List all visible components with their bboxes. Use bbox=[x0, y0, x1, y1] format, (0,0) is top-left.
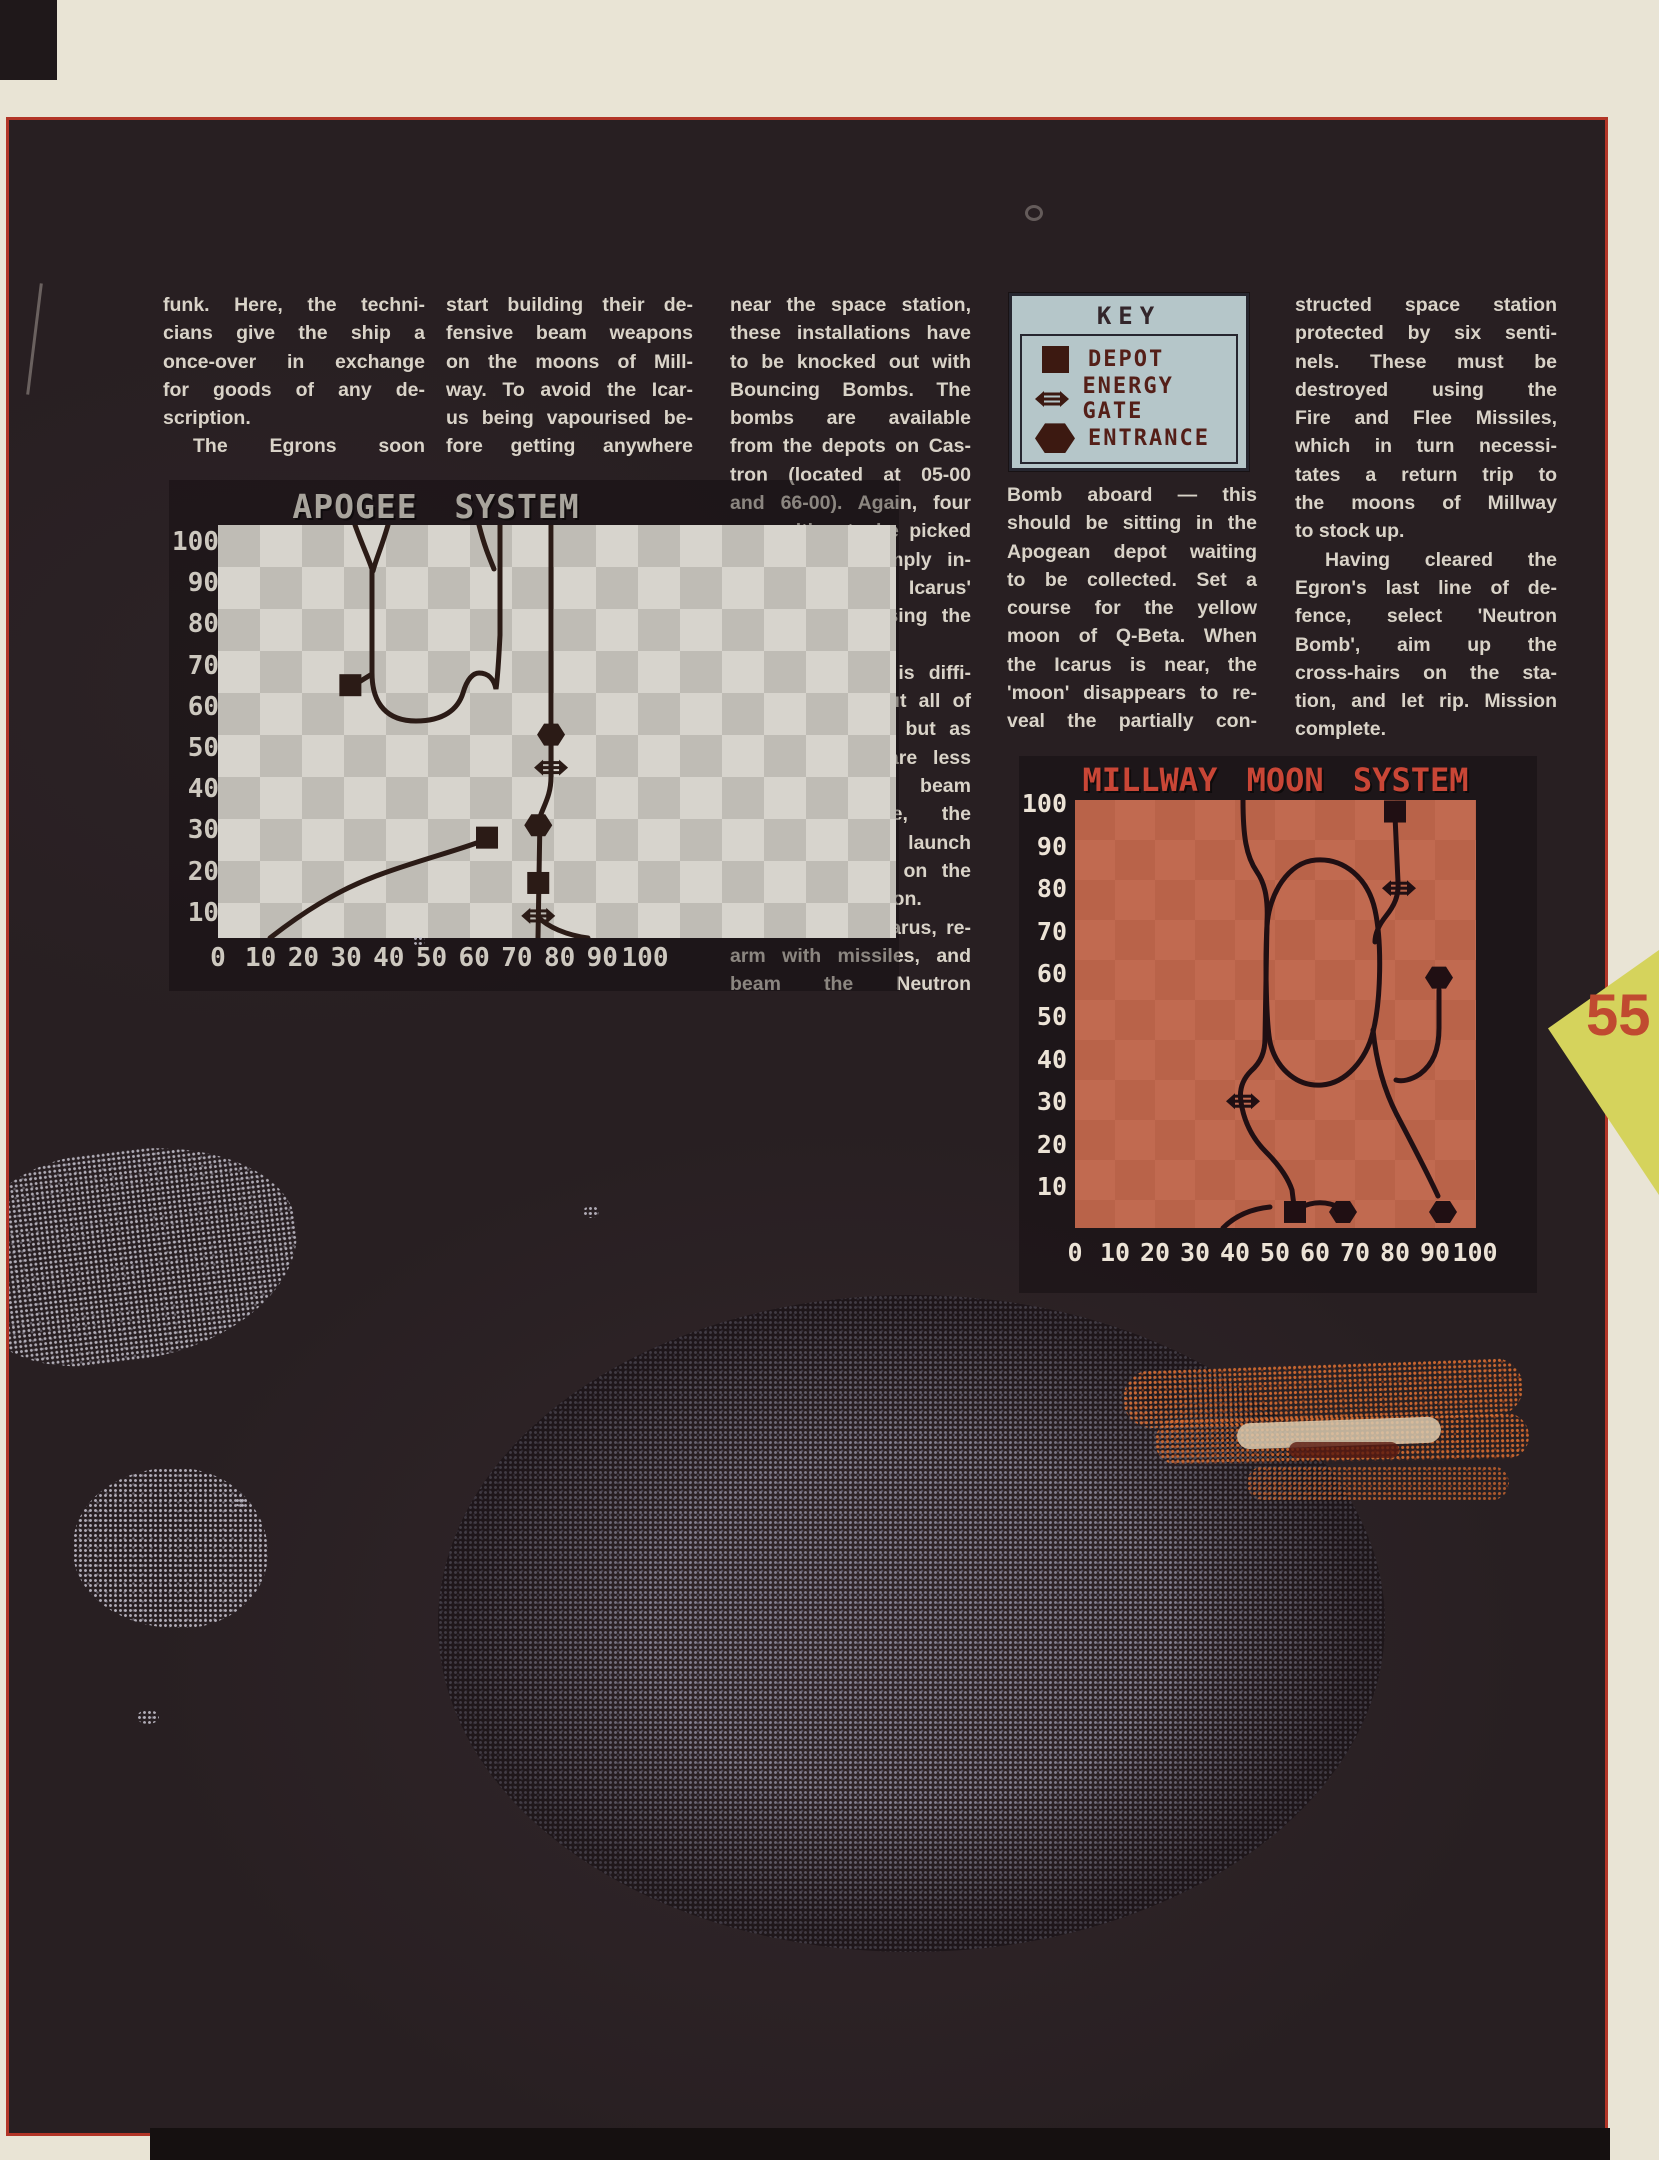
text-line: moon of Q-Beta. When bbox=[1007, 622, 1257, 650]
key-legend-box: KEY DEPOTENERGY GATEENTRANCE bbox=[1009, 293, 1249, 471]
text-line: fence, select 'Neutron bbox=[1295, 602, 1557, 630]
x-axis-tick-label: 60 bbox=[450, 943, 498, 973]
x-axis-tick-label: 20 bbox=[279, 943, 327, 973]
energy-gate-icon bbox=[1234, 1095, 1252, 1098]
text-line: cians give the ship a bbox=[163, 319, 425, 347]
y-axis-tick-label: 90 bbox=[1037, 832, 1067, 861]
y-axis-tick-label: 30 bbox=[1037, 1087, 1067, 1116]
orbit-path bbox=[1396, 990, 1439, 1081]
text-line: destroyed using the bbox=[1295, 376, 1557, 404]
text-line: tion, and let rip. Mission bbox=[1295, 687, 1557, 715]
x-axis-tick-label: 100 bbox=[621, 943, 669, 973]
text-line: the Icarus is near, the bbox=[1007, 651, 1257, 679]
scan-corner-block bbox=[0, 0, 57, 80]
entrance-icon bbox=[1035, 423, 1075, 453]
speck-3 bbox=[137, 1710, 159, 1724]
scan-scratch bbox=[26, 283, 43, 395]
apogee-map-title: APOGEE SYSTEM bbox=[218, 487, 654, 526]
x-axis-tick-label: 30 bbox=[322, 943, 370, 973]
depot-icon bbox=[339, 674, 361, 696]
text-line: the moons of Millway bbox=[1295, 489, 1557, 517]
key-item-label: DEPOT bbox=[1088, 347, 1164, 372]
energy-gate-icon bbox=[542, 771, 560, 774]
energy-gate-icon bbox=[1390, 892, 1408, 895]
text-line: near the space station, bbox=[730, 291, 971, 319]
depot-icon bbox=[1284, 1201, 1306, 1223]
y-axis-tick-label: 70 bbox=[1037, 917, 1067, 946]
x-axis-tick-label: 10 bbox=[237, 943, 285, 973]
planet-left-large bbox=[6, 1130, 311, 1379]
speck-2 bbox=[583, 1206, 599, 1218]
text-line: tates a return trip to bbox=[1295, 461, 1557, 489]
text-line: complete. bbox=[1295, 715, 1557, 743]
orbit-path bbox=[1373, 1030, 1438, 1196]
scan-fleck bbox=[1025, 205, 1043, 221]
text-line: way. To avoid the Icar- bbox=[446, 376, 693, 404]
depot-icon bbox=[1022, 346, 1088, 373]
apogee-map bbox=[218, 525, 896, 938]
y-axis-tick-label: 80 bbox=[1037, 874, 1067, 903]
text-line: Bomb aboard — this bbox=[1007, 481, 1257, 509]
text-line: The Egrons soon bbox=[163, 432, 425, 460]
planet-left-small bbox=[73, 1468, 268, 1628]
text-line: 'moon' disappears to re- bbox=[1007, 679, 1257, 707]
article-column-5: structed space stationprotected by six s… bbox=[1295, 291, 1557, 744]
millway-y-axis: 100908070605040302010 bbox=[1019, 800, 1071, 1240]
y-axis-tick-label: 50 bbox=[188, 733, 219, 763]
apogee-map-panel: APOGEE SYSTEM 100908070605040302010 0102… bbox=[169, 480, 899, 991]
millway-orbit-canvas bbox=[1075, 800, 1476, 1228]
article-column-1: funk. Here, the techni-cians give the sh… bbox=[163, 291, 425, 461]
text-line: to be knocked out with bbox=[730, 348, 971, 376]
millway-map bbox=[1075, 800, 1476, 1228]
orbit-path bbox=[479, 525, 494, 569]
energy-gate-icon bbox=[529, 909, 547, 912]
x-axis-tick-label: 70 bbox=[493, 943, 541, 973]
entrance-icon bbox=[537, 724, 565, 746]
text-line: which in turn necessi- bbox=[1295, 432, 1557, 460]
text-line: to stock up. bbox=[1295, 517, 1557, 545]
energy-gate-icon bbox=[1390, 887, 1408, 890]
energy-gate-icon bbox=[1043, 397, 1061, 400]
text-line: Fire and Flee Missiles, bbox=[1295, 404, 1557, 432]
text-line: structed space station bbox=[1295, 291, 1557, 319]
y-axis-tick-label: 20 bbox=[1037, 1130, 1067, 1159]
apogee-x-axis: 0102030405060708090100 bbox=[218, 943, 918, 973]
x-axis-tick-label: 50 bbox=[408, 943, 456, 973]
text-line: start building their de- bbox=[446, 291, 693, 319]
text-line: should be sitting in the bbox=[1007, 509, 1257, 537]
text-line: Having cleared the bbox=[1295, 546, 1557, 574]
text-line: protected by six senti- bbox=[1295, 319, 1557, 347]
y-axis-tick-label: 50 bbox=[1037, 1002, 1067, 1031]
nebula-streak-3 bbox=[1247, 1466, 1509, 1500]
energy-gate-icon bbox=[1043, 402, 1061, 405]
y-axis-tick-label: 70 bbox=[188, 651, 219, 681]
energy-gate-icon bbox=[529, 914, 547, 917]
entrance-icon bbox=[1022, 423, 1088, 453]
text-line: nels. These must be bbox=[1295, 348, 1557, 376]
y-axis-tick-label: 20 bbox=[188, 857, 219, 887]
orbit-path bbox=[373, 525, 388, 571]
scan-bottom-bar bbox=[150, 2128, 1610, 2160]
entrance-icon bbox=[1429, 1201, 1457, 1223]
millway-map-panel: MILLWAY MOON SYSTEM 10090807060504030201… bbox=[1019, 756, 1537, 1293]
article-column-4: Bomb aboard — thisshould be sitting in t… bbox=[1007, 481, 1257, 736]
energy-gate-icon bbox=[1234, 1105, 1252, 1108]
y-axis-tick-label: 60 bbox=[1037, 959, 1067, 988]
energy-gate-icon bbox=[1390, 882, 1408, 885]
key-item-label: ENERGY GATE bbox=[1082, 374, 1236, 424]
y-axis-tick-label: 30 bbox=[188, 815, 219, 845]
y-axis-tick-label: 100 bbox=[172, 527, 219, 557]
text-line: scription. bbox=[163, 404, 425, 432]
x-axis-tick-label: 40 bbox=[365, 943, 413, 973]
depot-icon bbox=[1042, 346, 1069, 373]
text-line: veal the partially con- bbox=[1007, 707, 1257, 735]
text-line: to be collected. Set a bbox=[1007, 566, 1257, 594]
millway-map-title: MILLWAY MOON SYSTEM bbox=[1075, 761, 1476, 799]
x-axis-tick-label: 80 bbox=[536, 943, 584, 973]
y-axis-tick-label: 80 bbox=[188, 609, 219, 639]
energy-gate-icon bbox=[529, 919, 547, 922]
text-line: bombs are available bbox=[730, 404, 971, 432]
speck-1 bbox=[413, 936, 425, 946]
text-line: fore getting anywhere bbox=[446, 432, 693, 460]
text-line: Apogean depot waiting bbox=[1007, 538, 1257, 566]
depot-icon bbox=[1384, 801, 1406, 823]
key-item-depot: DEPOT bbox=[1022, 341, 1236, 379]
apogee-y-axis: 100908070605040302010 bbox=[169, 525, 223, 945]
orbit-path bbox=[270, 841, 482, 938]
depot-icon bbox=[527, 872, 549, 894]
apogee-orbit-canvas bbox=[218, 525, 896, 938]
x-axis-tick-label: 0 bbox=[194, 943, 242, 973]
energy-gate-icon bbox=[542, 766, 560, 769]
key-item-energy-gate: ENERGY GATE bbox=[1022, 380, 1236, 418]
text-line: for goods of any de- bbox=[163, 376, 425, 404]
y-axis-tick-label: 10 bbox=[188, 898, 219, 928]
energy-gate-icon bbox=[1028, 385, 1076, 413]
text-line: cross-hairs on the sta- bbox=[1295, 659, 1557, 687]
text-line: Bomb', aim up the bbox=[1295, 631, 1557, 659]
orbit-path bbox=[1266, 860, 1380, 1085]
millway-x-axis: 0102030405060708090100 bbox=[1075, 1238, 1505, 1268]
text-line: from the depots on Cas- bbox=[730, 432, 971, 460]
orbit-path bbox=[1223, 1207, 1270, 1228]
orbit-path bbox=[1375, 816, 1398, 942]
energy-gate-icon bbox=[542, 761, 560, 764]
text-line: us being vapourised be- bbox=[446, 404, 693, 432]
key-title: KEY bbox=[1012, 302, 1246, 330]
y-axis-tick-label: 40 bbox=[1037, 1045, 1067, 1074]
entrance-icon bbox=[1425, 967, 1453, 989]
magazine-page: funk. Here, the techni-cians give the sh… bbox=[6, 117, 1608, 2136]
energy-gate-icon bbox=[1234, 1100, 1252, 1103]
text-line: fensive beam weapons bbox=[446, 319, 693, 347]
text-line: Egron's last line of de- bbox=[1295, 574, 1557, 602]
article-column-2: start building their de-fensive beam wea… bbox=[446, 291, 693, 461]
key-items: DEPOTENERGY GATEENTRANCE bbox=[1020, 334, 1238, 464]
nebula-dark-blob bbox=[1289, 1442, 1399, 1458]
text-line: once-over in exchange bbox=[163, 348, 425, 376]
energy-gate-icon bbox=[1043, 392, 1061, 395]
text-line: Bouncing Bombs. The bbox=[730, 376, 971, 404]
text-line: these installations have bbox=[730, 319, 971, 347]
page-number: 55 bbox=[1586, 982, 1651, 1049]
key-item-entrance: ENTRANCE bbox=[1022, 419, 1236, 457]
y-axis-tick-label: 100 bbox=[1022, 789, 1067, 818]
y-axis-tick-label: 90 bbox=[188, 568, 219, 598]
energy-gate-icon bbox=[1022, 385, 1082, 413]
y-axis-tick-label: 40 bbox=[188, 774, 219, 804]
x-axis-tick-label: 100 bbox=[1451, 1238, 1499, 1267]
speck-4 bbox=[235, 1498, 247, 1507]
y-axis-tick-label: 60 bbox=[188, 692, 219, 722]
y-axis-tick-label: 10 bbox=[1037, 1172, 1067, 1201]
x-axis-tick-label: 90 bbox=[578, 943, 626, 973]
depot-icon bbox=[476, 827, 498, 849]
text-line: on the moons of Mill- bbox=[446, 348, 693, 376]
text-line: course for the yellow bbox=[1007, 594, 1257, 622]
key-item-label: ENTRANCE bbox=[1088, 426, 1210, 451]
text-line: funk. Here, the techni- bbox=[163, 291, 425, 319]
entrance-icon bbox=[524, 814, 552, 836]
